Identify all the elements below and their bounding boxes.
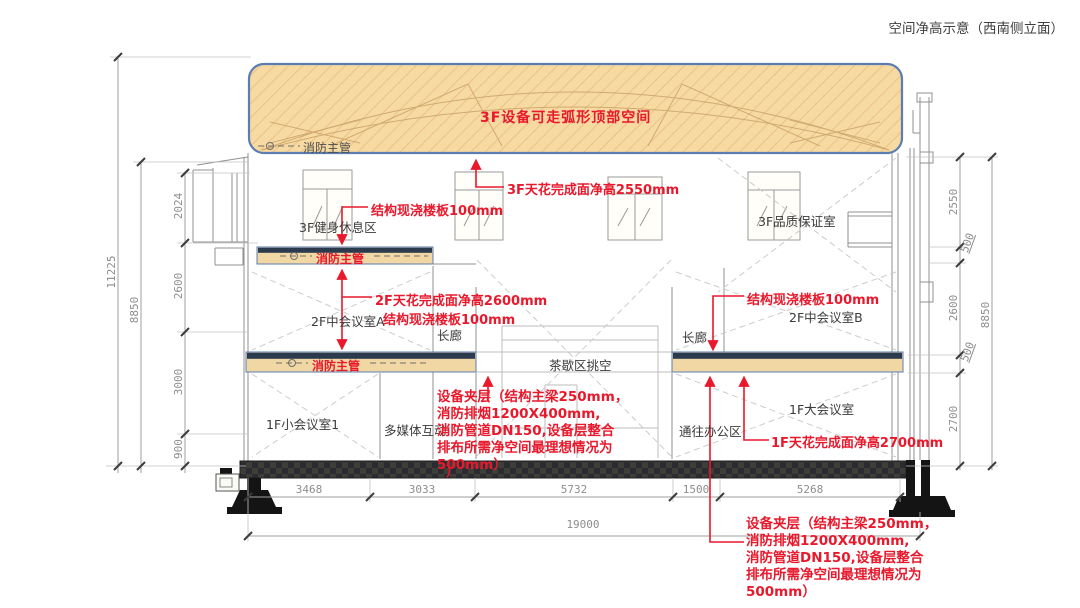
note-slab-100-left-mid: 结构现浇楼板100mm [383,309,515,328]
dim-bottom-1500: 1500 [664,483,728,496]
dim-left-sub: 8850 [128,288,142,332]
fire-main-label-2f-slab: 消防主管 [312,357,360,374]
note-equipment-layer-bottom: 设备夹层（结构主梁250mm， 消防排烟1200X400mm, 消防管道DN15… [746,516,937,601]
room-label-corridor-right: 长廊 [682,327,707,346]
room-label-2f-meeting-b: 2F中会议室B [789,307,863,326]
note-ceiling-1f-2700: 1F天花完成面净高2700mm [771,432,943,451]
note-ceiling-2f-2600: 2F天花完成面净高2600mm [375,290,547,309]
dim-right-2550: 2550 [947,180,961,224]
room-label-to-office: 通往办公区 [679,421,742,440]
dim-right-total: 8850 [979,293,993,337]
dim-left-total: 11225 [105,250,119,294]
note-slab-100-right: 结构现浇楼板100mm [747,289,879,308]
slab-2f-right [672,352,903,372]
dim-left-3000: 3000 [172,360,186,404]
note-equipment-layer-mid-tail: ） [446,464,460,481]
dim-bottom-5732: 5732 [542,483,606,496]
dim-bottom-5268: 5268 [778,483,842,496]
room-label-1f-large-meeting: 1F大会议室 [789,399,854,418]
elevation-drawing: 空间净高示意（西南侧立面） 3F设备可走弧形顶部空间 消防主管 消防主管 消防主… [0,0,1080,608]
dim-bottom-total: 19000 [551,518,615,531]
fire-main-label-top: 消防主管 [303,139,351,156]
dim-bottom-3033: 3033 [390,483,454,496]
dim-bottom-3468: 3468 [277,483,341,496]
room-label-3f-gym: 3F健身休息区 [299,217,377,236]
note-slab-100-left-top: 结构现浇楼板100mm [371,200,503,219]
roof-equipment-note: 3F设备可走弧形顶部空间 [480,107,651,127]
dim-left-900: 900 [172,427,186,471]
room-label-1f-small-meeting: 1F小会议室1 [266,414,339,433]
note-ceiling-3f-2550: 3F天花完成面净高2550mm [507,179,679,198]
room-label-tea-void: 茶歇区挑空 [549,355,612,374]
side-equipment-box [216,474,239,491]
room-label-3f-quality: 3F品质保证室 [758,211,836,230]
room-label-2f-meeting-a: 2F中会议室A [311,311,385,330]
drawing-title: 空间净高示意（西南侧立面） [889,17,1065,37]
dim-left-2600: 2600 [172,264,186,308]
note-equipment-layer-mid: 设备夹层（结构主梁250mm， 消防排烟1200X400mm, 消防管道DN15… [437,389,628,474]
slab-2f-left [246,352,476,372]
dim-right-2600: 2600 [947,286,961,330]
dim-left-2024: 2024 [172,184,186,228]
fire-main-label-3f-slab: 消防主管 [316,250,364,267]
dim-right-2700: 2700 [947,397,961,441]
